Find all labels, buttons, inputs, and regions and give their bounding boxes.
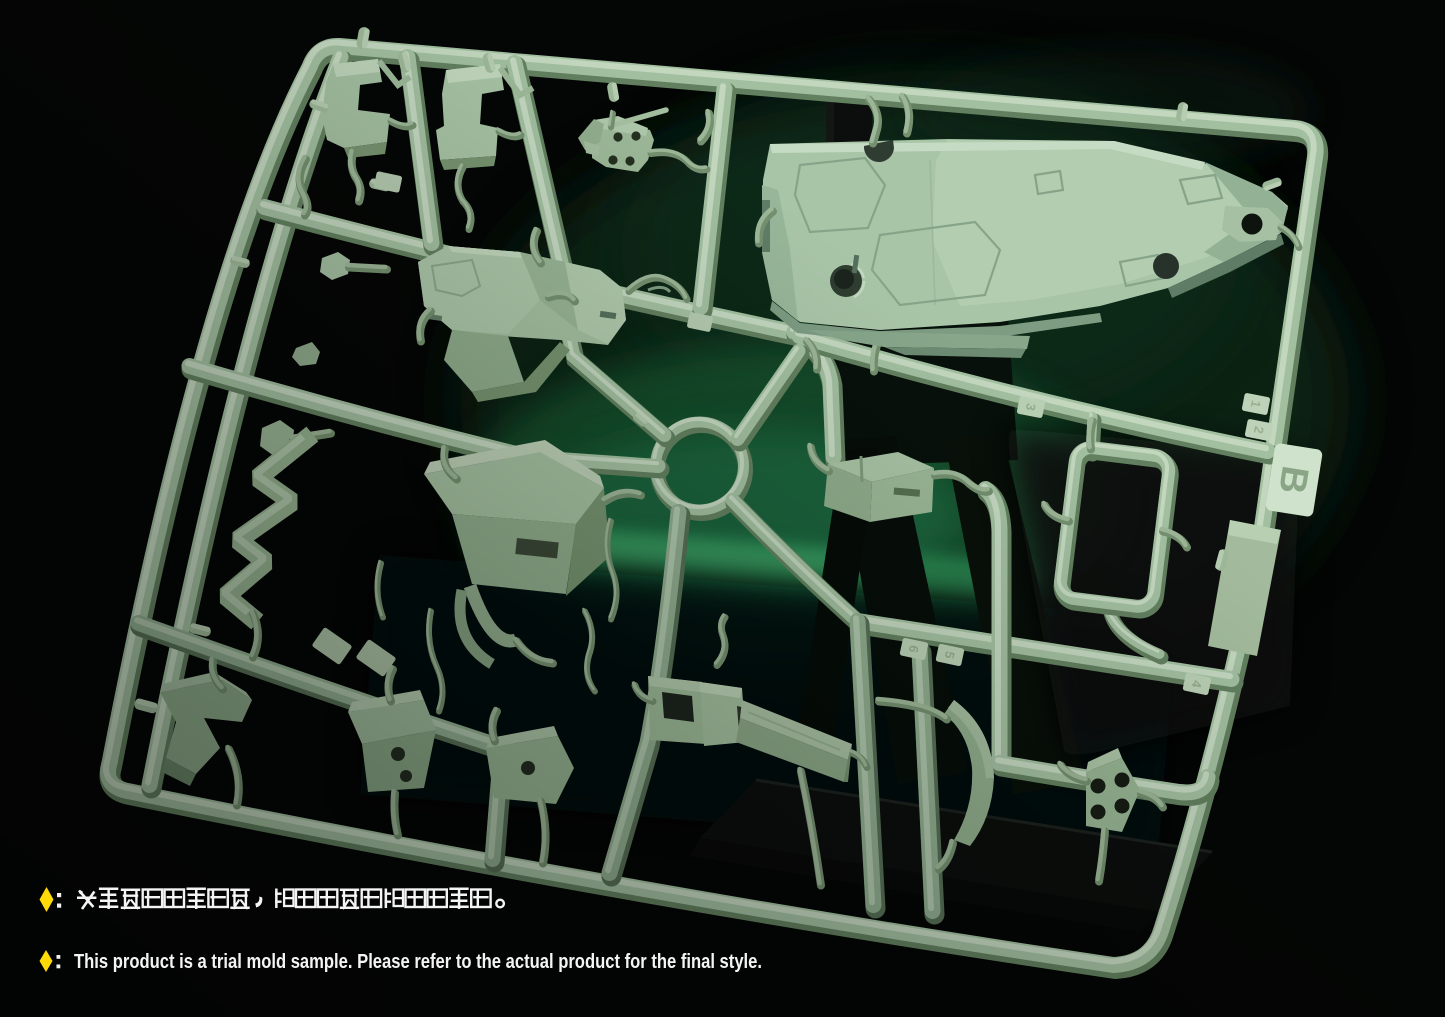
svg-text:This product is a trial mold s: This product is a trial mold sample. Ple… (74, 950, 762, 973)
